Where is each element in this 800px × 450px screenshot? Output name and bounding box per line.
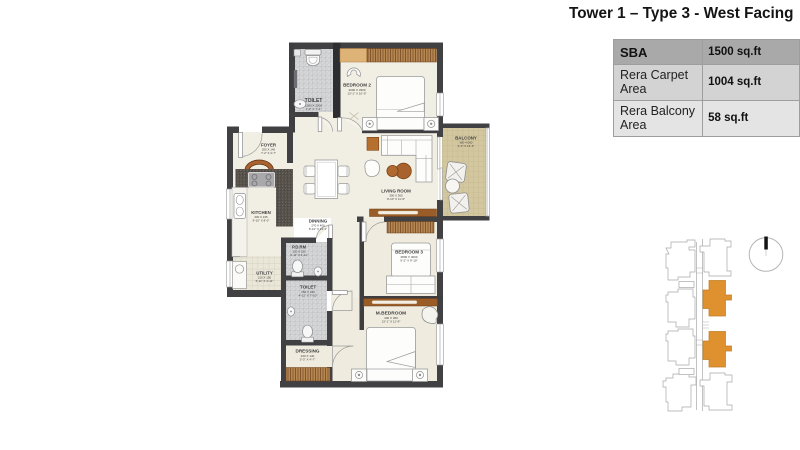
svg-text:DRESSING: DRESSING xyxy=(296,349,320,354)
svg-text:9'-10" X 8'-0": 9'-10" X 8'-0" xyxy=(253,219,270,223)
svg-text:13'-1" X 10'-9": 13'-1" X 10'-9" xyxy=(348,92,367,96)
svg-text:4'-0" X 13'-4": 4'-0" X 13'-4" xyxy=(458,144,475,148)
svg-text:4'-11" X 7'-10": 4'-11" X 7'-10" xyxy=(299,294,318,298)
svg-text:TOILET: TOILET xyxy=(300,285,316,290)
svg-text:6'-11" X 4'-11": 6'-11" X 4'-11" xyxy=(256,279,274,283)
svg-text:8'-10" X 13'-1": 8'-10" X 13'-1" xyxy=(309,227,327,231)
svg-text:4'-0" X 7'-4": 4'-0" X 7'-4" xyxy=(306,107,322,111)
svg-text:BEDROOM 3: BEDROOM 3 xyxy=(395,250,423,255)
svg-text:5'-3" X 4'-7": 5'-3" X 4'-7" xyxy=(300,358,316,362)
svg-text:9'-10" X 11'-9": 9'-10" X 11'-9" xyxy=(387,197,405,201)
svg-text:3'-11" X 4'-11": 3'-11" X 4'-11" xyxy=(290,253,308,257)
svg-text:13'-1" X 11'-9": 13'-1" X 11'-9" xyxy=(382,320,401,324)
svg-text:BEDROOM 2: BEDROOM 2 xyxy=(343,83,371,88)
svg-text:7'-2" X 4'-7": 7'-2" X 4'-7" xyxy=(261,151,276,155)
svg-text:9'-2" X 9'-10": 9'-2" X 9'-10" xyxy=(400,259,417,263)
